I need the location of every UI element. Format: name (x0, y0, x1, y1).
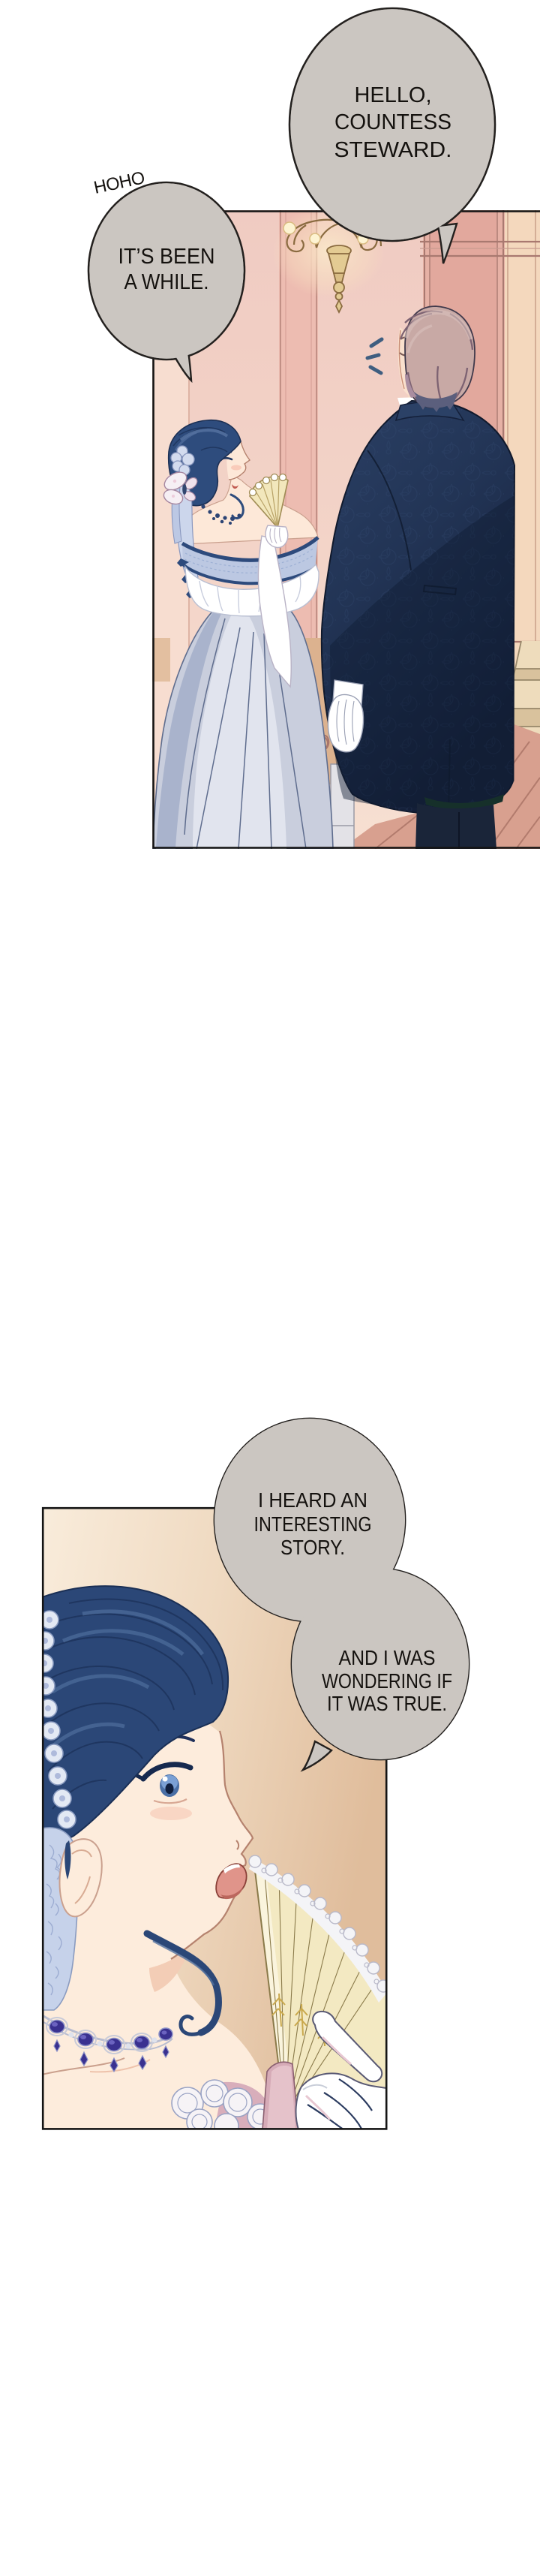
svg-text:STORY.: STORY. (280, 1536, 345, 1559)
svg-text:HELLO,: HELLO, (355, 83, 432, 107)
svg-text:A WHILE.: A WHILE. (124, 270, 209, 294)
svg-text:I HEARD AN: I HEARD AN (258, 1488, 367, 1512)
svg-text:IT’S BEEN: IT’S BEEN (118, 245, 215, 269)
svg-text:WONDERING IF: WONDERING IF (322, 1669, 452, 1693)
svg-text:INTERESTING: INTERESTING (254, 1512, 372, 1536)
svg-text:IT WAS TRUE.: IT WAS TRUE. (327, 1692, 447, 1715)
svg-text:STEWARD.: STEWARD. (334, 138, 452, 162)
svg-text:AND I WAS: AND I WAS (339, 1646, 436, 1669)
svg-text:COUNTESS: COUNTESS (334, 110, 451, 134)
